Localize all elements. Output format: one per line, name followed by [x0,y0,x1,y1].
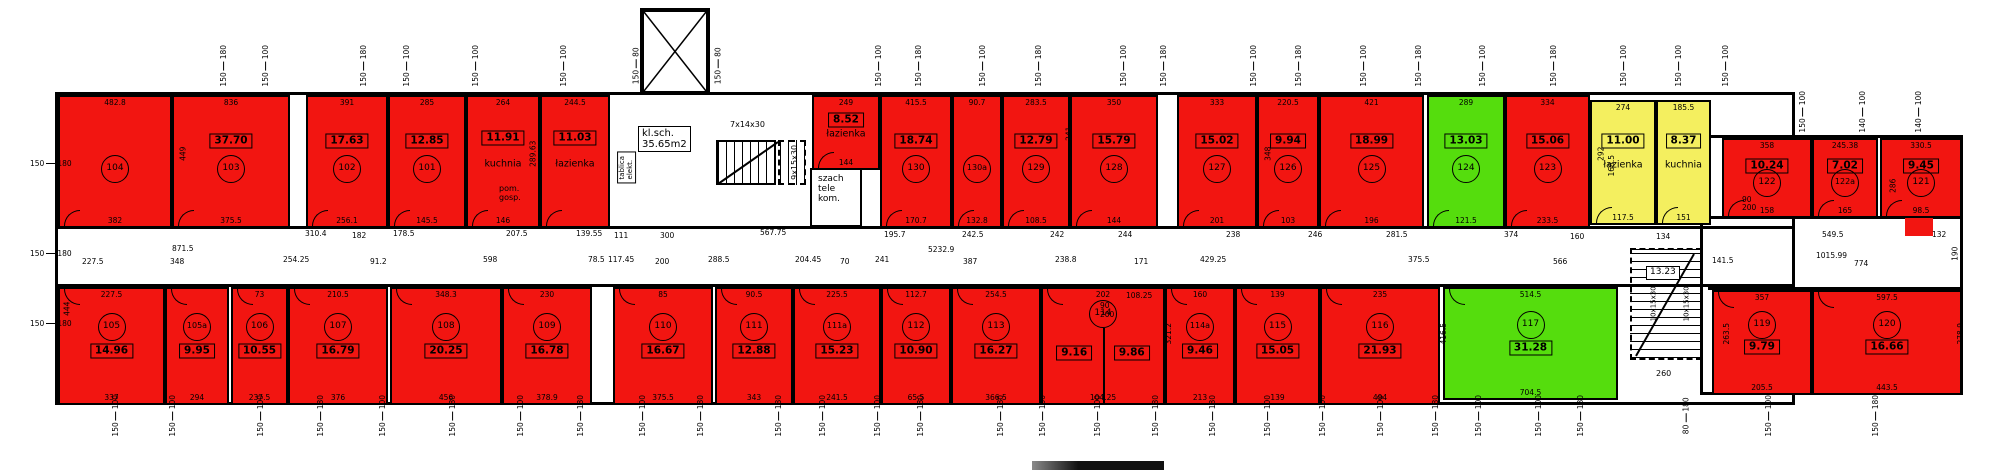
door-arc [1047,289,1063,305]
room-dim-bottom: 256.1 [336,217,357,225]
room-area: 12.88 [732,343,775,358]
window-marker-bottom: 150180 [917,395,925,437]
door-arc [294,289,310,305]
label-klsch: kl.sch.35.65m2 [638,126,691,152]
window-marker-bottom: 150100 [639,395,647,437]
room-dim-bottom: 139 [1270,394,1284,402]
window-marker-top: 15080 [715,47,723,84]
room-area: 15.06 [1526,133,1569,148]
dimension: 160 [1570,233,1584,241]
room-area: 11.03 [553,131,596,146]
room-125: 42119612518.99 [1319,95,1424,228]
room-101: 285145.510112.85 [388,95,466,228]
door-arc [472,210,488,226]
dimension: 871.5 [172,245,193,253]
dimension: 238 [1226,231,1240,239]
room-111: 90.534311112.88 [715,287,793,405]
window-marker-top: 150100 [472,45,480,87]
room-łazienka: 249144łazienka8.52 [812,95,880,170]
dimension: 227.5 [82,258,103,266]
room-area: 15.05 [1256,343,1299,358]
dimension: 246 [1308,231,1322,239]
room-129: 283.5108.512912.79 [1002,95,1070,228]
label-9x15x30: 9x15x30 [791,145,800,180]
label-10x15x30: 10x15x30 [1651,286,1659,321]
dimension: 292 [1597,147,1605,161]
door-arc [1183,210,1199,226]
dimension: 244 [1118,231,1132,239]
room-dim-top: 90.7 [969,99,986,107]
room-dim-bottom: 213 [1193,394,1207,402]
room-dim-top: 249 [839,99,853,107]
room-divider [1103,328,1105,403]
door-arc [958,210,974,226]
door-arc [312,210,328,226]
room-dim-bottom: 343 [747,394,761,402]
door-arc [1886,200,1902,216]
dimension: 416.5 [1440,323,1448,344]
room-number: 120 [1873,311,1901,339]
window-marker-bottom: 150180 [1152,395,1160,437]
window-marker-top: 150100 [979,45,987,87]
dimension: 348 [170,258,184,266]
door-arc [721,289,737,305]
room-area: 9.46 [1182,343,1218,358]
room-dim-bottom: 196 [1364,217,1378,225]
room-dim-bottom: 233.5 [1537,217,1558,225]
door-arc [546,210,562,226]
room-area: 9.16 [1056,345,1092,360]
room-dim-top: 244.5 [564,99,585,107]
dimension: 207.5 [506,230,527,238]
window-marker-top: 150100 [1250,45,1258,87]
room-number: 117 [1517,311,1545,339]
dimension: 278.9 [1957,323,1965,344]
door-arc [799,289,815,305]
room-107: 210.537610716.79 [288,287,388,405]
room-dim-bottom: 145.5 [416,217,437,225]
room-area: 9.94 [1270,133,1306,148]
dimension: 139.55 [576,230,602,238]
window-marker-bottom: 150100 [1094,395,1102,437]
window-marker-bottom: 150100 [1475,395,1483,437]
room-112: 112.765.511210.90 [881,287,951,405]
window-marker-top: 150100 [1120,45,1128,87]
room-area: 9.79 [1744,339,1780,354]
room-area: 21.93 [1358,343,1401,358]
dimension: 238.8 [1055,256,1076,264]
room-108: 348.345610820.25 [390,287,502,405]
room-dim-top: 334 [1540,99,1554,107]
room-area: 11.91 [481,131,524,146]
room-number: 101 [413,155,441,183]
room-name: kuchnia [485,159,522,170]
window-marker-bottom: 150100 [1319,395,1327,437]
door-arc [1662,207,1678,223]
room-dim-bottom: 103 [1281,217,1295,225]
window-marker-top: 150180 [1295,45,1303,87]
dimension: 242 [1050,231,1064,239]
window-marker-bottom: 150100 [1765,395,1773,437]
dimension: 90 [1100,302,1110,310]
room-number: 115 [1264,313,1292,341]
window-marker-bottom: 150180 [1432,395,1440,437]
dimension: 134 [1656,233,1670,241]
room-dim-bottom: 376 [331,394,345,402]
window-marker-bottom: 150100 [257,395,265,437]
label-1323: 13.23 [1646,266,1680,280]
room-name: łazienka [826,128,865,139]
room-dim-top: 85 [658,291,668,299]
room-number: 114a [1186,313,1214,341]
room-dim-top: 210.5 [327,291,348,299]
door-arc [171,289,187,305]
dimension: 241 [1065,127,1073,141]
room-dim-bottom: 158 [1760,207,1774,215]
window-marker-bottom: 150100 [874,395,882,437]
room-area: 15.23 [815,343,858,358]
door-arc [1596,207,1612,223]
room-area: 16.66 [1865,339,1908,354]
dimension: 70 [840,258,850,266]
room-number: 105 [98,313,126,341]
room-area: 10.90 [894,343,937,358]
door-arc [1325,210,1341,226]
dimension: 286 [1889,179,1897,193]
room-dim-top: 202 [1096,291,1110,299]
room-number: 111 [740,313,768,341]
room-number: 103 [217,155,245,183]
window-marker-bottom: 150180 [997,395,1005,437]
staircase-top [716,140,776,185]
room-106: 73237.510610.55 [231,287,288,405]
dimension: 195.7 [884,231,905,239]
room-number: 127 [1203,155,1231,183]
room-dim-bottom: 375.5 [220,217,241,225]
door-arc [508,289,524,305]
room-130a: 90.7132.8130a [952,95,1002,228]
room-dim-top: 357 [1755,294,1769,302]
room-113: 254.5366.511316.27 [951,287,1041,405]
window-marker-top: 150100 [1479,45,1487,87]
window-marker-bottom: 150100 [1377,395,1385,437]
window-marker-bottom: 150180 [1872,395,1880,437]
door-arc [1718,292,1734,308]
dimension: 449 [179,147,187,161]
label-szach: szachtelekom. [818,175,844,205]
dimension: 254.25 [283,256,309,264]
door-arc [887,289,903,305]
window-marker-top: 15080 [633,47,641,84]
dimension: 117.45 [608,256,634,264]
door-arc [396,289,412,305]
dimension: 374 [1504,231,1518,239]
window-marker-left: 150180 [30,250,72,258]
window-marker-top: 150100 [1722,45,1730,87]
room-area: 20.25 [424,343,467,358]
dimension: 567.75 [760,229,786,237]
dimension: 774 [1854,260,1868,268]
room-area: 10.55 [238,343,281,358]
window-marker-bottom: 150180 [775,395,783,437]
window-marker-top: 150100 [560,45,568,87]
corridor-connector-121 [1905,216,1933,236]
room-area: 8.37 [1666,133,1702,148]
door-arc [1008,210,1024,226]
dimension: 5232.9 [928,246,954,254]
dimension: 91.2 [370,258,387,266]
window-marker-top: 150180 [1550,45,1558,87]
window-marker-bottom: 150100 [169,395,177,437]
room-dim-top: 227.5 [101,291,122,299]
room-dim-top: 254.5 [985,291,1006,299]
room-dim-top: 274 [1616,104,1630,112]
room-dim-bottom: 165 [1838,207,1852,215]
room-130: 415.5170.713018.74 [880,95,952,228]
dimension: 289.63 [529,141,537,167]
window-marker-bottom: 150100 [379,395,387,437]
window-marker-top: 150180 [220,45,228,87]
room-dim-top: 245.38 [1832,142,1858,150]
room-dim-bottom: 241.5 [826,394,847,402]
room-number: 124 [1452,155,1480,183]
door-arc [1511,210,1527,226]
room-dim-bottom: 144 [839,159,853,167]
window-marker-left: 150180 [30,320,72,328]
window-marker-top: 150180 [915,45,923,87]
door-arc [1433,210,1449,226]
room-dim-bottom: 98.5 [1913,207,1930,215]
room-area: 11.00 [1601,133,1644,148]
room-number: 102 [333,155,361,183]
room-dim-bottom: 382 [108,217,122,225]
room-126: 220.51031269.94 [1257,95,1319,228]
room-area: 9.95 [179,343,215,358]
window-marker-bottom: 150100 [1535,395,1543,437]
door-arc [394,210,410,226]
dimension: 171 [1134,258,1148,266]
room-dim-top: 283.5 [1025,99,1046,107]
room-area: 12.85 [405,133,448,148]
dimension: 598 [483,256,497,264]
scale-bar [1032,461,1164,470]
window-marker-bottom: 150180 [577,395,585,437]
room-area: 16.27 [974,343,1017,358]
room-area: 18.99 [1350,133,1393,148]
window-marker-bottom: 150100 [819,395,827,437]
label-tablica: tablicaelekt. [617,152,636,184]
room-number: 130a [963,155,991,183]
window-marker-bottom: 150180 [449,395,457,437]
room-area: 7.02 [1827,158,1863,173]
room-dim-top: 358 [1760,142,1774,150]
room-120: 597.5443.512016.66 [1812,290,1962,395]
door-arc [64,210,80,226]
room-number: 104 [101,155,129,183]
window-marker-top: 150100 [262,45,270,87]
room-dim-top: 220.5 [1277,99,1298,107]
room-area-2: 9.86 [1114,345,1150,360]
room-dim-top: 185.5 [1673,104,1694,112]
room-number: 129 [1022,155,1050,183]
dimension: 263.5 [1723,323,1731,344]
dimension: 1015.99 [1816,252,1847,260]
dimension: 288.5 [708,256,729,264]
room-105a: 294105a9.95 [165,287,229,405]
room-dim-bottom: 170.7 [905,217,926,225]
dimension: 281.5 [1386,231,1407,239]
dimension: 200 [1100,311,1114,319]
room-dim-top: 73 [255,291,265,299]
dimension: 300 [660,232,674,240]
door-arc [818,152,834,168]
room-127: 33320112715.02 [1177,95,1257,228]
room-łazienka: 244.5łazienka11.03 [540,95,610,228]
label-pom: pom.gosp. [499,185,521,203]
window-marker-bottom: 150100 [1264,395,1272,437]
dimension: 348 [1264,147,1272,161]
room-number: 112 [902,313,930,341]
room-dim-bottom: 375.5 [652,394,673,402]
window-marker-top: 150100 [1675,45,1683,87]
room-105: 227.533710514.96 [58,287,165,405]
room-number: 128 [1100,155,1128,183]
floor-plan: 482.8382104836375.510337.70391256.110217… [0,0,2000,470]
window-marker-top: 150180 [1160,45,1168,87]
room-dim-bottom: 108.5 [1025,217,1046,225]
room-dim-bottom: 121.5 [1455,217,1476,225]
window-marker-bottom: 150180 [1577,395,1585,437]
elevator-shaft [640,8,710,95]
room-109: 230378.910916.78 [502,287,592,405]
window-marker-top: 150180 [1415,45,1423,87]
room-dim-top: 225.5 [826,291,847,299]
dimension: 108.25 [1126,292,1152,300]
room-dim-bottom: 205.5 [1751,384,1772,392]
room-number: 110 [649,313,677,341]
room-dim-top: 230 [540,291,554,299]
door-arc [1326,289,1342,305]
dimension: 132 [1932,231,1946,239]
window-marker-top: 140100 [1915,91,1923,133]
room-area: 12.79 [1014,133,1057,148]
room-dim-top: 391 [340,99,354,107]
window-marker-top: 150180 [360,45,368,87]
room-name: łazienka [555,159,594,170]
door-arc [619,289,635,305]
room-area: 18.74 [894,133,937,148]
label-260: 260 [1656,370,1671,379]
room-115: 13913911515.05 [1235,287,1320,405]
room-dim-bottom: 201 [1210,217,1224,225]
window-marker-bottom: 150100 [112,395,120,437]
dimension: 387 [963,258,977,266]
dimension: 78.5 [588,256,605,264]
room-dim-top: 264 [496,99,510,107]
window-marker-bottom: 150100 [517,395,525,437]
room-dim-bottom: 146 [496,217,510,225]
room-number: 108 [432,313,460,341]
label-10x15x30: 10x15x30 [1684,286,1692,321]
room-area: 9.45 [1903,158,1939,173]
dimension: 190 [1951,247,1959,261]
room-dim-top: 415.5 [905,99,926,107]
room-dim-top: 330.5 [1910,142,1931,150]
room-number: 119 [1748,311,1776,339]
room-dim-top: 112.7 [905,291,926,299]
window-marker-top: 150100 [1360,45,1368,87]
door-arc [178,210,194,226]
room-114a: 160213114a9.46 [1165,287,1235,405]
dimension: 141.5 [1712,257,1733,265]
room-area: 15.79 [1092,133,1135,148]
window-marker-left: 150180 [30,160,72,168]
room-number: 123 [1534,155,1562,183]
room-110: 85375.511016.67 [613,287,713,405]
dimension: 566 [1553,258,1567,266]
dimension: 242.5 [962,231,983,239]
room-103: 836375.510337.70 [172,95,290,228]
room-111a: 225.5241.5111a15.23 [793,287,881,405]
window-marker-top: 150180 [1035,45,1043,87]
room-dim-top: 333 [1210,99,1224,107]
room-dim-top: 285 [420,99,434,107]
dimension: 111 [614,232,628,240]
label-7x14x30: 7x14x30 [730,121,765,130]
room-dim-bottom: 144 [1107,217,1121,225]
room-102: 391256.110217.63 [306,95,388,228]
door-arc [1171,289,1187,305]
dimension: 429.25 [1200,256,1226,264]
window-marker-top: 150100 [875,45,883,87]
door-arc [237,289,253,305]
door-arc [1263,210,1279,226]
window-marker-top: 150100 [1799,91,1807,133]
room-number: 111a [823,313,851,341]
room-area: 8.52 [828,112,864,127]
room-dim-top: 514.5 [1520,291,1541,299]
room-area: 37.70 [209,133,252,148]
room-area: 16.79 [316,343,359,358]
room-128: 35014412815.79 [1070,95,1158,228]
room-104: 482.8382104 [58,95,172,228]
room-number: 105a [183,313,211,341]
window-marker-bottom: 150180 [1209,395,1217,437]
room-number: 126 [1274,155,1302,183]
window-marker-bottom: 150180 [697,395,705,437]
dimension: 168.5 [1608,155,1616,176]
room-area: 15.02 [1195,133,1238,148]
room-dim-bottom: 443.5 [1876,384,1897,392]
shaft-cross-icon [644,12,706,91]
room-name: kuchnia [1665,159,1702,170]
room-122: 35815812210.24 [1722,138,1812,218]
room-area: 31.28 [1509,340,1552,355]
room-area: 16.78 [525,343,568,358]
room-number: 107 [324,313,352,341]
dimension: 321.2 [1165,323,1173,344]
room-dim-top: 350 [1107,99,1121,107]
room-number: 109 [533,313,561,341]
window-marker-bottom: 150100 [1039,395,1047,437]
room-124: 289121.512413.03 [1427,95,1505,228]
dimension: 375.5 [1408,256,1429,264]
window-marker-bottom: 150180 [317,395,325,437]
room-dim-bottom: 294 [190,394,204,402]
door-arc [1449,289,1465,305]
room-122a: 245.38165122a7.02 [1812,138,1878,218]
room-dim-bottom: 378.9 [536,394,557,402]
